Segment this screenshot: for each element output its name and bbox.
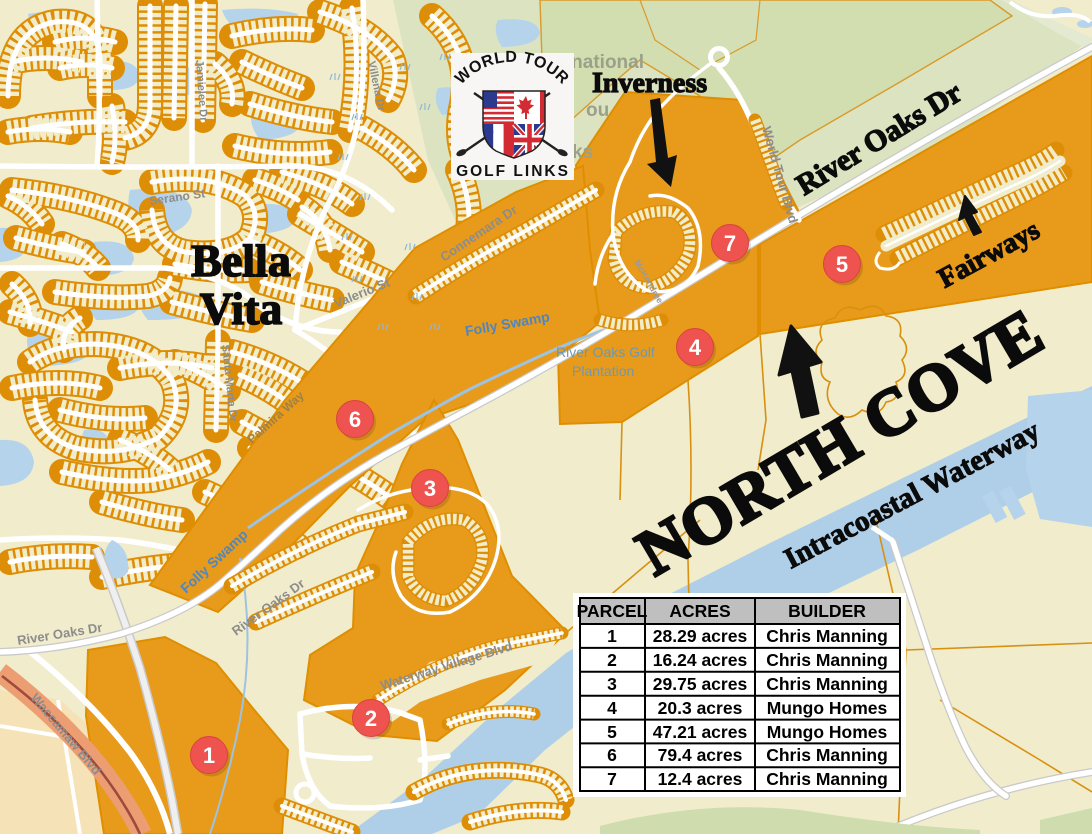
svg-text:Vita: Vita — [200, 283, 283, 334]
svg-text:4: 4 — [689, 335, 702, 360]
svg-text:River Oaks Golf: River Oaks Golf — [556, 344, 655, 360]
svg-text:Chris Manning: Chris Manning — [766, 674, 888, 694]
svg-text:3: 3 — [424, 476, 436, 501]
svg-text:ks: ks — [572, 142, 593, 163]
svg-text:1: 1 — [203, 743, 215, 768]
svg-text:2: 2 — [607, 650, 617, 670]
svg-text:GOLF LINKS: GOLF LINKS — [456, 163, 570, 180]
svg-text:Plantation: Plantation — [572, 363, 634, 379]
svg-text:7: 7 — [724, 231, 736, 256]
svg-text:79.4 acres: 79.4 acres — [658, 745, 743, 765]
svg-text:20.3 acres: 20.3 acres — [658, 698, 743, 718]
svg-text:Mungo Homes: Mungo Homes — [767, 722, 888, 742]
svg-text:4: 4 — [607, 698, 617, 718]
svg-text:1: 1 — [607, 626, 617, 646]
svg-text:Mungo Homes: Mungo Homes — [767, 698, 888, 718]
svg-text:ACRES: ACRES — [669, 601, 730, 621]
svg-text:7: 7 — [607, 769, 617, 789]
svg-text:Chris Manning: Chris Manning — [766, 769, 888, 789]
svg-text:Chris Manning: Chris Manning — [766, 626, 888, 646]
svg-text:3: 3 — [607, 674, 617, 694]
svg-text:6: 6 — [607, 745, 617, 765]
svg-text:5: 5 — [836, 252, 848, 277]
svg-text:Bella: Bella — [191, 235, 291, 286]
svg-text:Chris Manning: Chris Manning — [766, 650, 888, 670]
svg-text:2: 2 — [365, 706, 377, 731]
svg-text:29.75 acres: 29.75 acres — [653, 674, 748, 694]
svg-text:Inverness: Inverness — [592, 68, 707, 99]
svg-text:PARCEL: PARCEL — [577, 601, 648, 621]
svg-text:47.21 acres: 47.21 acres — [653, 722, 748, 742]
svg-text:Chris Manning: Chris Manning — [766, 745, 888, 765]
svg-text:5: 5 — [607, 722, 617, 742]
svg-text:16.24 acres: 16.24 acres — [653, 650, 748, 670]
svg-text:6: 6 — [349, 407, 361, 432]
svg-text:BUILDER: BUILDER — [788, 601, 866, 621]
svg-text:12.4 acres: 12.4 acres — [658, 769, 743, 789]
svg-text:28.29 acres: 28.29 acres — [653, 626, 748, 646]
svg-text:ou: ou — [586, 100, 609, 121]
